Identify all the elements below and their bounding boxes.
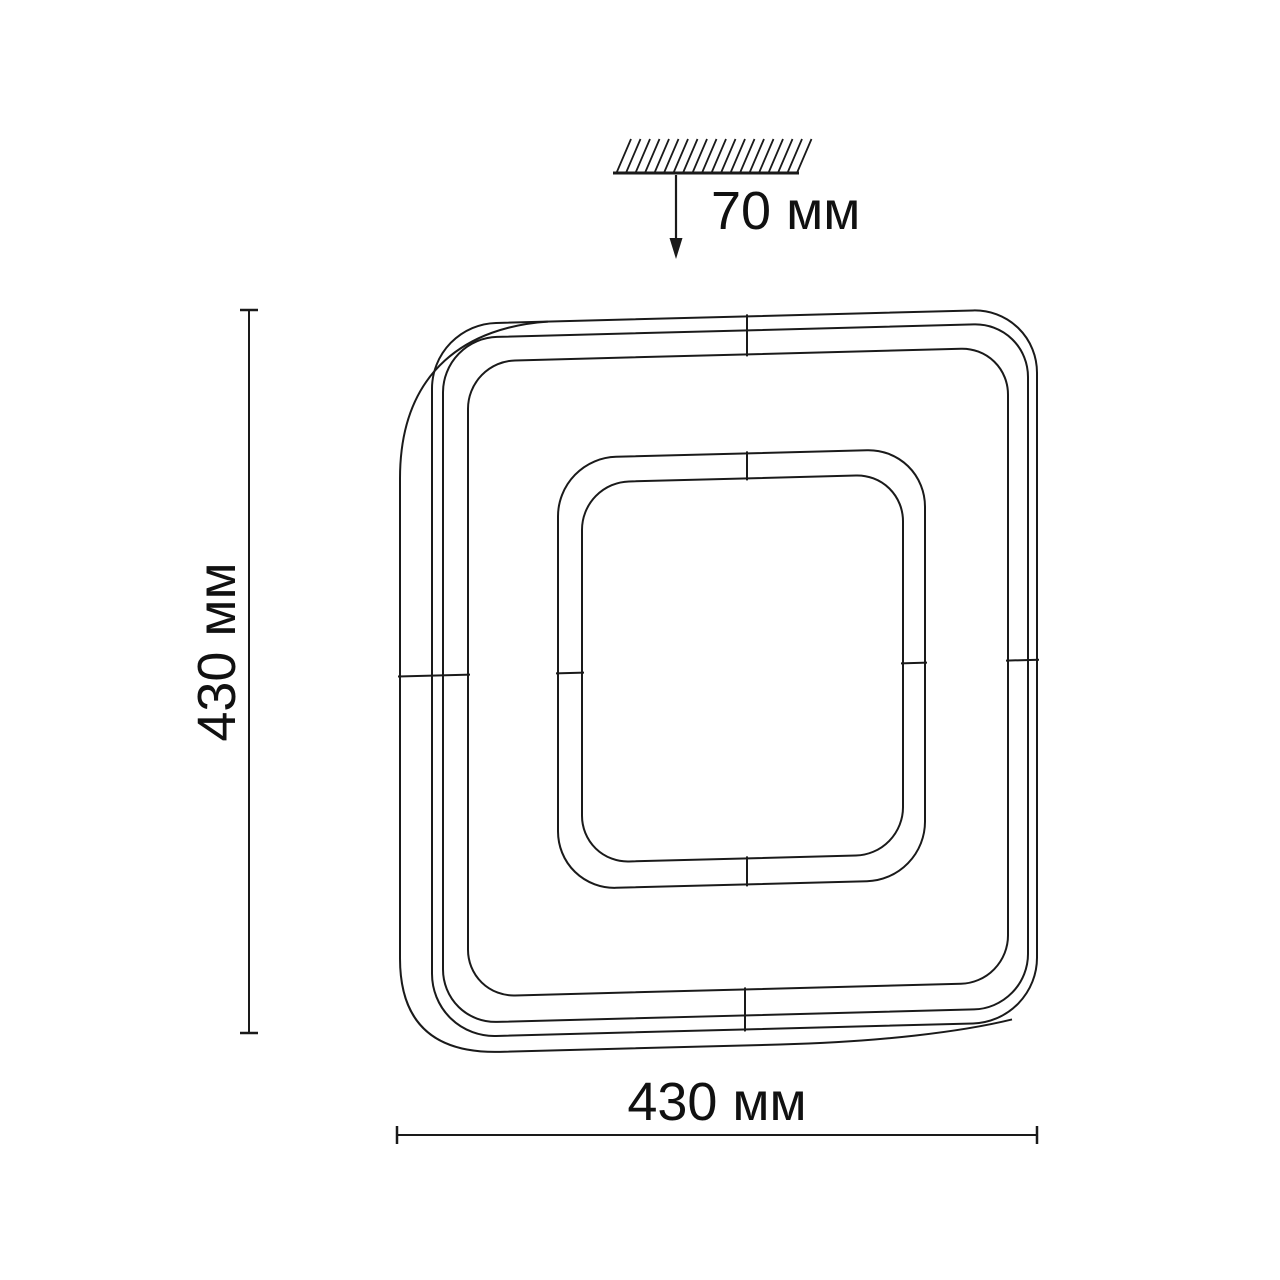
dimension-drawing-page: 70 мм 430 мм 430 мм — [0, 0, 1280, 1280]
fixture-side-profile — [400, 309, 1012, 1054]
depth-dimension-label: 70 мм — [711, 181, 860, 241]
depth-arrowhead-icon — [670, 238, 683, 259]
dimension-drawing: 70 мм 430 мм 430 мм — [0, 0, 1280, 1280]
fixture-panel-outline — [468, 348, 1008, 997]
fixture-outer-outline-inner — [443, 323, 1028, 1023]
height-dimension-label: 430 мм — [187, 562, 247, 741]
fixture-seam-marks — [398, 307, 1039, 1041]
ceiling-hatch-icon — [616, 139, 812, 174]
fixture-outer-outline — [432, 309, 1037, 1038]
fixture-drawing — [398, 307, 1039, 1055]
fixture-inner-square-inner — [582, 474, 903, 862]
width-dimension-label: 430 мм — [627, 1072, 806, 1132]
fixture-inner-square-outer — [558, 449, 925, 890]
